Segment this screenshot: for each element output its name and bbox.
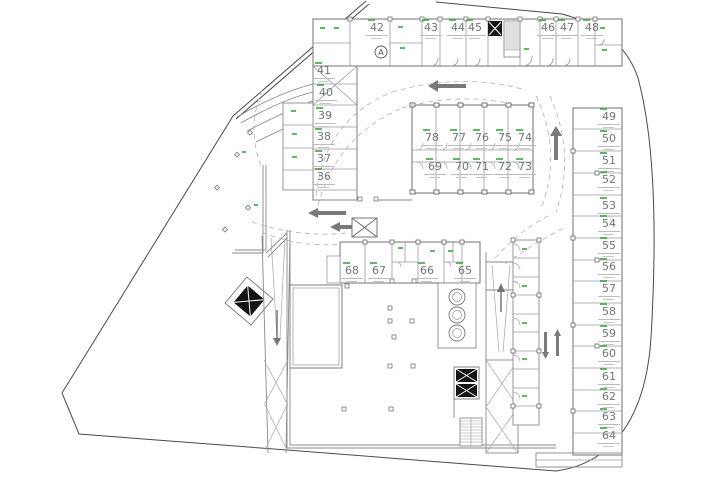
unit-number-48: 48 — [581, 22, 603, 36]
unit-number-57: 57 — [598, 283, 620, 297]
unit-number-51: 51 — [598, 155, 620, 169]
unit-number-42: 42 — [366, 22, 388, 36]
unit-number-54: 54 — [598, 218, 620, 232]
unit-number-70: 70 — [451, 161, 473, 175]
unit-number-37: 37 — [313, 153, 335, 167]
unit-number-71: 71 — [471, 161, 493, 175]
unit-number-72: 72 — [494, 161, 516, 175]
unit-number-49: 49 — [598, 111, 620, 125]
unit-number-36: 36 — [313, 171, 335, 185]
unit-number-43: 43 — [420, 22, 442, 36]
unit-number-50: 50 — [598, 133, 620, 147]
unit-number-61: 61 — [598, 371, 620, 385]
unit-number-58: 58 — [598, 306, 620, 320]
floor-plan-page: A — [0, 0, 726, 485]
unit-number-53: 53 — [598, 200, 620, 214]
unit-number-63: 63 — [598, 411, 620, 425]
unit-number-74: 74 — [514, 132, 536, 146]
unit-number-78: 78 — [421, 132, 443, 146]
unit-number-38: 38 — [313, 131, 335, 145]
unit-number-65: 65 — [454, 265, 476, 279]
unit-number-62: 62 — [598, 391, 620, 405]
unit-number-67: 67 — [368, 265, 390, 279]
unit-number-66: 66 — [416, 265, 438, 279]
unit-number-68: 68 — [341, 265, 363, 279]
unit-number-40: 40 — [315, 87, 337, 101]
unit-number-77: 77 — [448, 132, 470, 146]
unit-number-69: 69 — [424, 161, 446, 175]
unit-labels: 4243444546474841403938373678777675746970… — [0, 0, 726, 485]
unit-number-41: 41 — [313, 65, 335, 79]
unit-number-55: 55 — [598, 240, 620, 254]
unit-number-52: 52 — [598, 174, 620, 188]
unit-number-45: 45 — [464, 22, 486, 36]
unit-number-75: 75 — [494, 132, 516, 146]
unit-number-73: 73 — [514, 161, 536, 175]
unit-number-47: 47 — [556, 22, 578, 36]
unit-number-76: 76 — [471, 132, 493, 146]
unit-number-59: 59 — [598, 328, 620, 342]
unit-number-64: 64 — [598, 430, 620, 444]
unit-number-56: 56 — [598, 261, 620, 275]
unit-number-39: 39 — [314, 110, 336, 124]
unit-number-60: 60 — [598, 348, 620, 362]
